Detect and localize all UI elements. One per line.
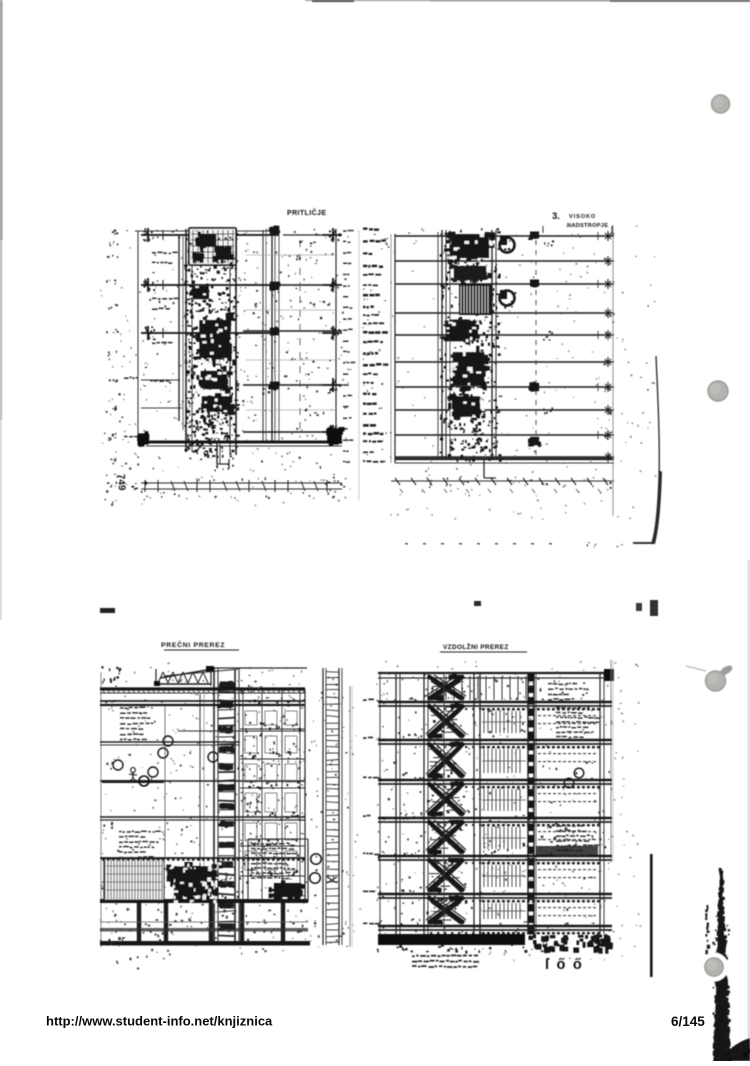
svg-text:PRITLIČJE: PRITLIČJE xyxy=(287,208,326,217)
svg-text:PREČNI PREREZ: PREČNI PREREZ xyxy=(161,640,225,649)
svg-text:NADSTROPJE: NADSTROPJE xyxy=(567,223,608,229)
svg-text:VISOKO: VISOKO xyxy=(569,214,596,220)
svg-text:3.: 3. xyxy=(552,211,560,222)
svg-text:VZDOLŽNI PREREZ: VZDOLŽNI PREREZ xyxy=(443,642,509,651)
